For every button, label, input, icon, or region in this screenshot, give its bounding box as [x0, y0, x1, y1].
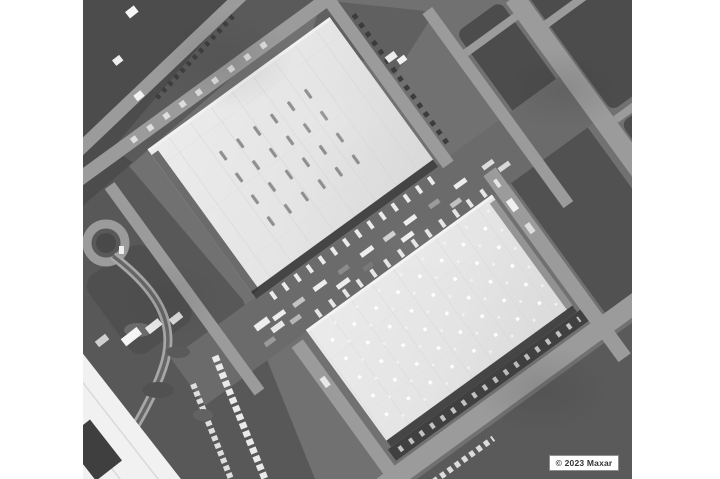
vehicle — [119, 246, 124, 254]
watermark-text: © 2023 Maxar — [556, 458, 613, 468]
ground-blob — [166, 346, 190, 358]
watermark: © 2023 Maxar — [549, 455, 619, 471]
ground-blob — [193, 409, 213, 421]
satellite-photo: © 2023 Maxar — [83, 0, 632, 479]
satellite-scene — [83, 0, 632, 479]
ground-blob — [142, 382, 174, 398]
page: © 2023 Maxar — [0, 0, 720, 479]
roundabout-island — [96, 233, 116, 253]
